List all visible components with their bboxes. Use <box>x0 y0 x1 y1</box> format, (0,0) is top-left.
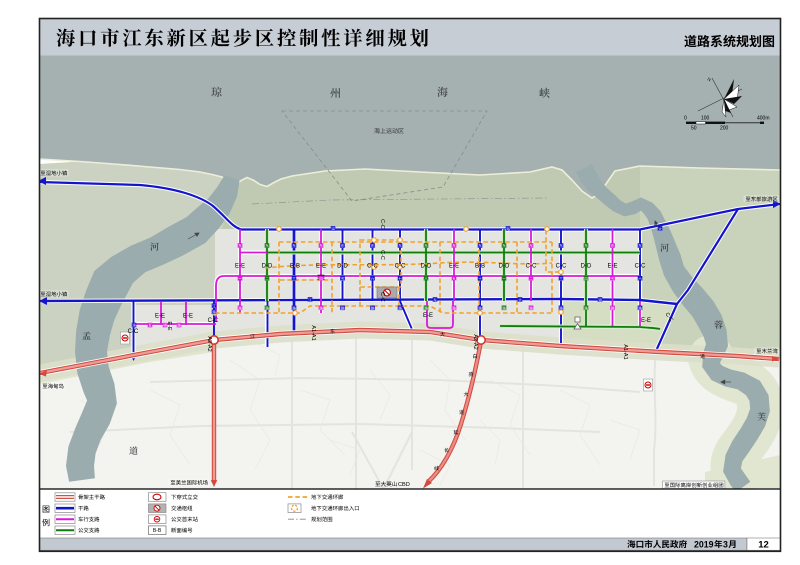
svg-text:E-E: E-E <box>423 313 433 319</box>
svg-text:3: 3 <box>723 539 728 549</box>
svg-text:B-B: B-B <box>290 264 300 270</box>
svg-text:200: 200 <box>720 126 729 132</box>
svg-text:B-B: B-B <box>153 528 162 534</box>
svg-text:C-C: C-C <box>367 264 378 270</box>
svg-text:100: 100 <box>701 116 710 122</box>
svg-text:E-E: E-E <box>607 264 617 270</box>
svg-text:C-C: C-C <box>526 264 537 270</box>
svg-text:E-E: E-E <box>183 314 193 320</box>
svg-text:D-D: D-D <box>581 264 592 270</box>
svg-text:B-B: B-B <box>475 264 485 270</box>
svg-text:C-C: C-C <box>379 292 385 302</box>
svg-text:C-C: C-C <box>395 264 406 270</box>
svg-text:D-D: D-D <box>337 264 348 270</box>
svg-text:2019: 2019 <box>694 539 714 549</box>
svg-text:A2-A2: A2-A2 <box>472 334 478 349</box>
svg-text:E-E: E-E <box>641 318 651 324</box>
svg-text:CBD: CBD <box>398 482 410 488</box>
svg-text:E-E: E-E <box>316 264 326 270</box>
svg-text:E-E: E-E <box>155 314 165 320</box>
svg-text:C-C: C-C <box>128 329 139 335</box>
svg-text:C-C: C-C <box>379 250 385 260</box>
svg-text:12: 12 <box>758 540 769 551</box>
svg-text:E-E: E-E <box>235 264 245 270</box>
svg-text:0: 0 <box>684 116 687 122</box>
svg-text:400m: 400m <box>757 116 770 122</box>
svg-text:D-D: D-D <box>421 264 432 270</box>
svg-text:50: 50 <box>691 126 697 132</box>
svg-text:A1-A1: A1-A1 <box>622 344 628 359</box>
svg-text:C-C: C-C <box>635 264 646 270</box>
svg-text:C-C: C-C <box>208 318 219 324</box>
svg-text:D-D: D-D <box>262 264 273 270</box>
svg-text:C-C: C-C <box>556 264 567 270</box>
svg-text:D-D: D-D <box>499 264 510 270</box>
svg-text:E-E: E-E <box>449 264 459 270</box>
svg-text:C-C: C-C <box>379 219 385 229</box>
svg-text:A1-A1: A1-A1 <box>310 325 316 340</box>
svg-text:A2-A2: A2-A2 <box>206 336 212 351</box>
